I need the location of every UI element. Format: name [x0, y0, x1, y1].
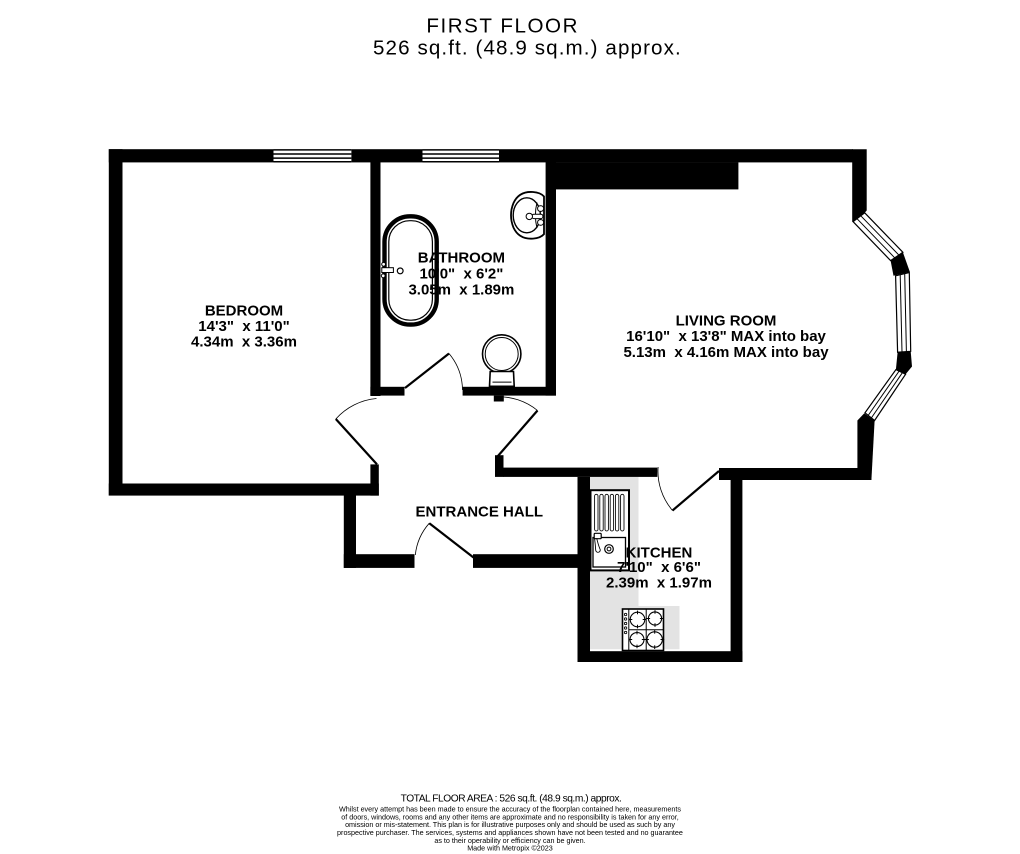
svg-text:ENTRANCE HALL: ENTRANCE HALL: [416, 503, 544, 520]
svg-text:TOTAL FLOOR AREA : 526 sq.ft.: TOTAL FLOOR AREA : 526 sq.ft. (48.9 sq.m…: [401, 793, 622, 804]
svg-text:Made with Metropix ©2023: Made with Metropix ©2023: [467, 844, 553, 853]
svg-text:BATHROOM: BATHROOM: [418, 250, 505, 267]
svg-text:LIVING ROOM: LIVING ROOM: [676, 313, 777, 330]
svg-text:3.05m x 1.89m: 3.05m x 1.89m: [408, 282, 514, 299]
svg-text:5.13m x 4.16m MAX into bay: 5.13m x 4.16m MAX into bay: [623, 344, 829, 361]
svg-text:4.34m x 3.36m: 4.34m x 3.36m: [191, 333, 297, 350]
svg-text:10'0" x 6'2": 10'0" x 6'2": [419, 266, 503, 283]
svg-text:526 sq.ft. (48.9 sq.m.) approx: 526 sq.ft. (48.9 sq.m.) approx.: [373, 37, 682, 60]
svg-text:FIRST FLOOR: FIRST FLOOR: [426, 15, 579, 38]
svg-text:2.39m x 1.97m: 2.39m x 1.97m: [606, 574, 712, 591]
svg-text:BEDROOM: BEDROOM: [205, 302, 283, 319]
svg-text:16'10" x 13'8" MAX into bay: 16'10" x 13'8" MAX into bay: [626, 328, 826, 345]
svg-text:14'3" x 11'0": 14'3" x 11'0": [198, 318, 289, 335]
